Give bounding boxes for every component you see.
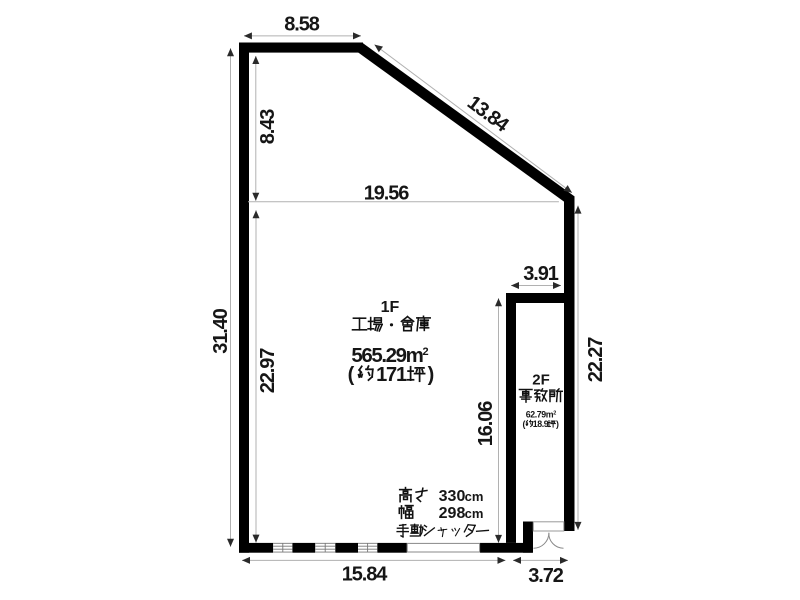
svg-text:cm: cm [465,506,484,521]
svg-text:(: ( [348,364,355,386]
svg-text:8.43: 8.43 [257,109,279,145]
svg-text:2F: 2F [532,371,550,388]
svg-text:22.97: 22.97 [257,348,279,394]
svg-text:31.40: 31.40 [210,308,232,354]
svg-text:): ) [428,364,435,386]
svg-text:62.79m2: 62.79m2 [526,409,557,419]
svg-text:19.56: 19.56 [364,183,410,205]
svg-text:18.9: 18.9 [533,419,549,429]
svg-text:22.27: 22.27 [585,337,607,383]
svg-text:1F: 1F [381,299,400,316]
svg-text:(: ( [523,419,526,429]
svg-text:3.91: 3.91 [523,263,559,285]
svg-text:15.84: 15.84 [342,564,389,586]
svg-text:16.06: 16.06 [475,401,497,447]
svg-text:): ) [556,419,559,429]
svg-text:171: 171 [376,364,407,386]
svg-text:8.58: 8.58 [284,14,320,36]
svg-text:298: 298 [439,505,466,522]
svg-text:3.72: 3.72 [528,565,564,587]
svg-text:cm: cm [465,489,484,504]
svg-text:330: 330 [439,488,466,505]
